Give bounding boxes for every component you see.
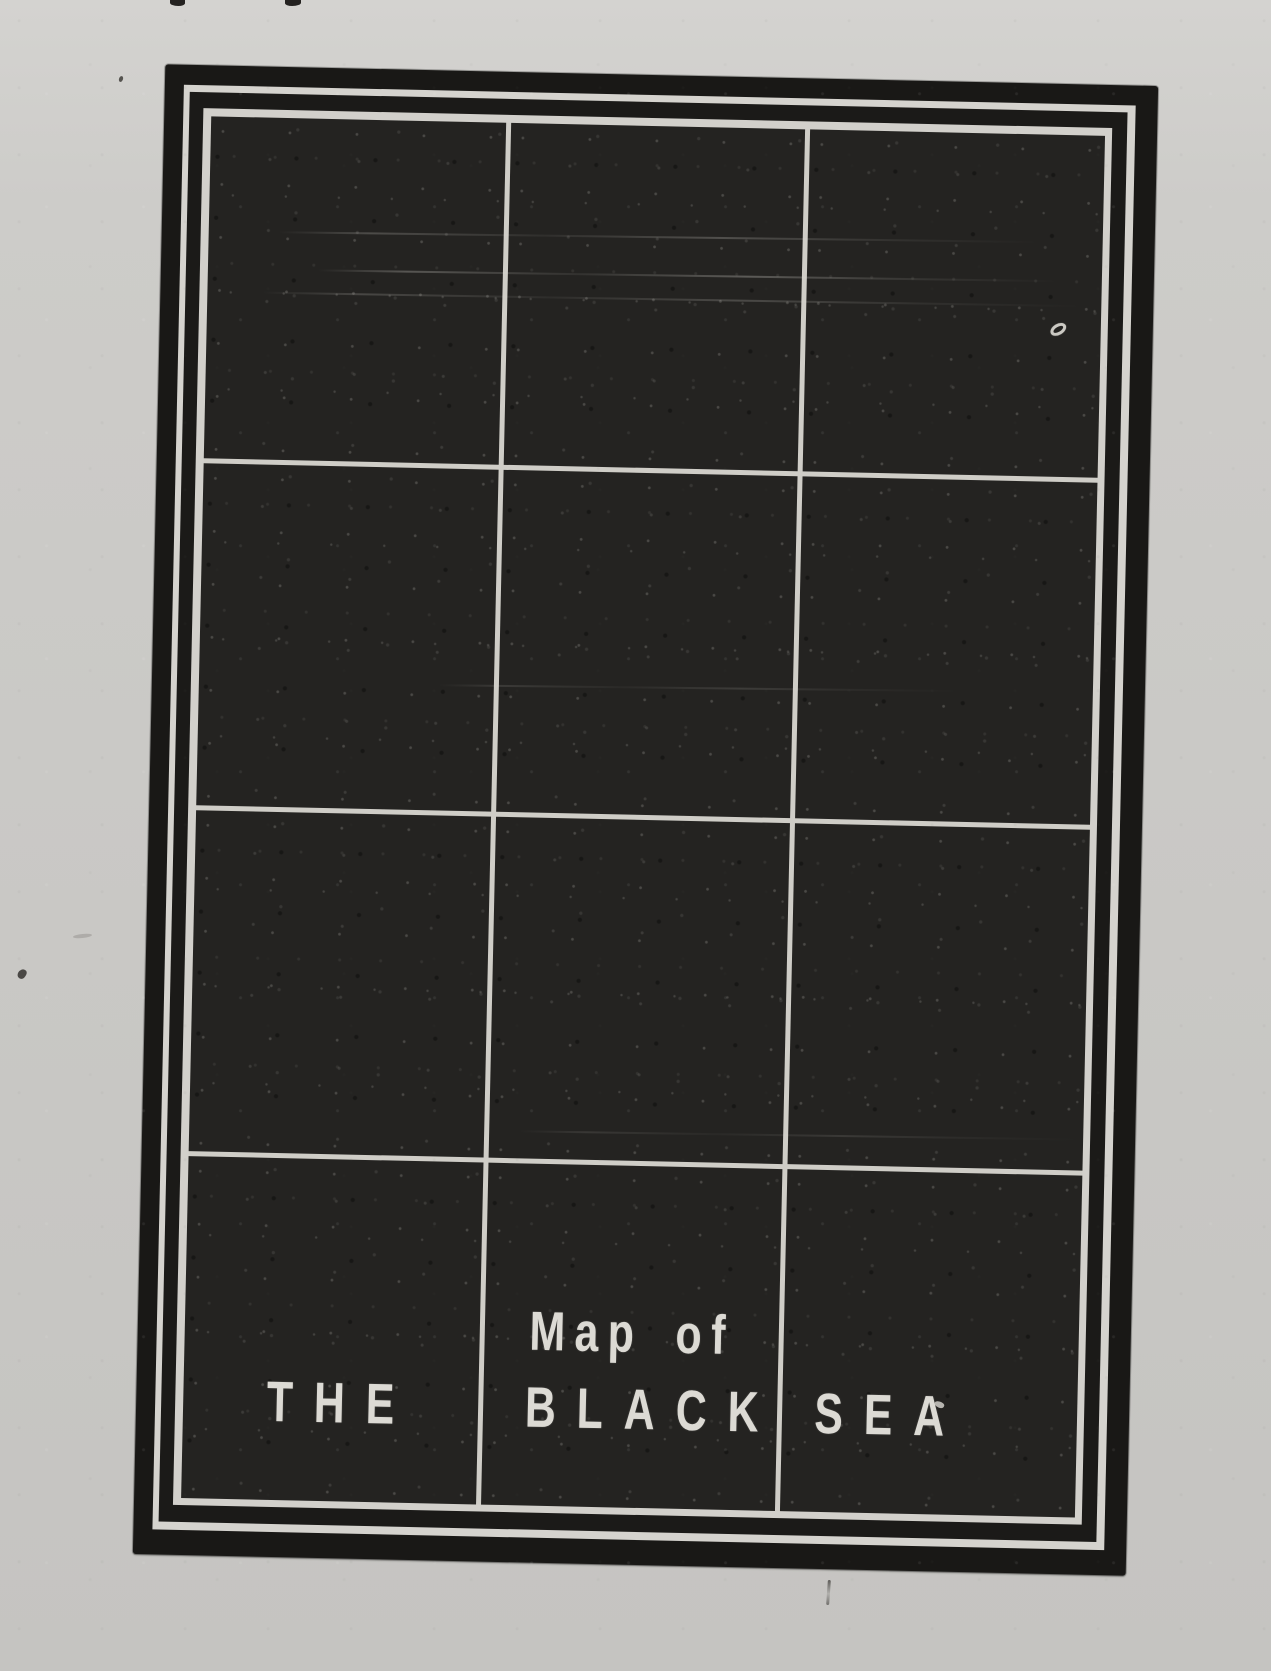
map-title-word-the: THE (219, 1372, 441, 1434)
cropped-letter-fragment (285, 0, 301, 6)
ink-speck (16, 968, 28, 981)
paper-smudge (73, 933, 92, 939)
scratch-mark (826, 1580, 831, 1605)
map-title-word-sea: SEA (769, 1384, 991, 1446)
map-frame-inner-white: THE Map of BLACK SEA (173, 108, 1112, 1524)
map-cell-r2c3 (795, 476, 1097, 824)
black-sea-map-plate: THE Map of BLACK SEA (133, 64, 1158, 1575)
cropped-letter-fragment (170, 0, 185, 6)
scanned-book-page: THE Map of BLACK SEA (0, 0, 1271, 1671)
map-cell-r3c2 (488, 816, 790, 1164)
map-cell-r1c2 (503, 123, 805, 471)
map-cell-r4c1: THE (181, 1156, 483, 1504)
map-cell-r2c2 (496, 470, 798, 818)
map-outer-frame: THE Map of BLACK SEA (133, 64, 1158, 1575)
map-cell-r3c3 (788, 823, 1090, 1171)
map-title-word-black: BLACK (503, 1379, 725, 1441)
map-grid: THE Map of BLACK SEA (181, 116, 1105, 1517)
map-cell-r3c1 (189, 810, 491, 1158)
map-cell-r1c1 (204, 116, 506, 464)
map-cell-r4c3: SEA (780, 1169, 1082, 1517)
map-frame-white-ring: THE Map of BLACK SEA (152, 85, 1135, 1550)
map-frame-inner-band: THE Map of BLACK SEA (159, 92, 1128, 1542)
ink-speck (118, 75, 124, 82)
map-caption: Map of (516, 1304, 747, 1364)
map-cell-r2c1 (196, 463, 498, 811)
map-cell-r4c2: Map of BLACK (481, 1163, 783, 1511)
map-cell-r1c3 (803, 129, 1105, 477)
